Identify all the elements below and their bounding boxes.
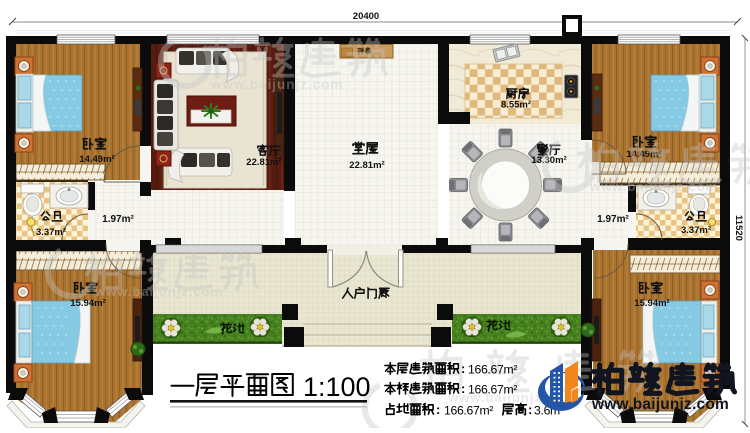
svg-text:www.baijunjz.com: www.baijunjz.com <box>589 179 718 194</box>
svg-text:14.49m²: 14.49m² <box>79 154 114 165</box>
svg-text::: : <box>461 381 465 396</box>
svg-text:www.baijunjz.com: www.baijunjz.com <box>591 396 729 413</box>
svg-text:20400: 20400 <box>353 11 379 22</box>
svg-text:www.baijunjz.com: www.baijunjz.com <box>210 77 344 92</box>
svg-text::: : <box>461 361 465 376</box>
svg-text:11520: 11520 <box>733 215 744 241</box>
svg-text:166.67m²: 166.67m² <box>468 383 517 397</box>
svg-text::: : <box>436 402 440 417</box>
svg-text:1.97m²: 1.97m² <box>102 214 134 225</box>
svg-text:15.94m²: 15.94m² <box>634 298 669 309</box>
svg-text:8.55m²: 8.55m² <box>501 100 531 111</box>
svg-text:www.baijunjz.com: www.baijunjz.com <box>94 284 223 299</box>
svg-text:15.94m²: 15.94m² <box>70 298 105 309</box>
svg-text:166.67m²: 166.67m² <box>468 363 517 377</box>
svg-text:166.67m²: 166.67m² <box>444 404 493 418</box>
svg-text:22.81m²: 22.81m² <box>349 160 384 171</box>
svg-text:3.37m²: 3.37m² <box>681 225 711 236</box>
svg-text:1.97m²: 1.97m² <box>597 214 629 225</box>
svg-text::: : <box>528 402 532 417</box>
svg-text:1:100: 1:100 <box>303 372 371 402</box>
svg-text:22.81m²: 22.81m² <box>246 157 281 168</box>
svg-text:3.37m²: 3.37m² <box>36 227 66 238</box>
